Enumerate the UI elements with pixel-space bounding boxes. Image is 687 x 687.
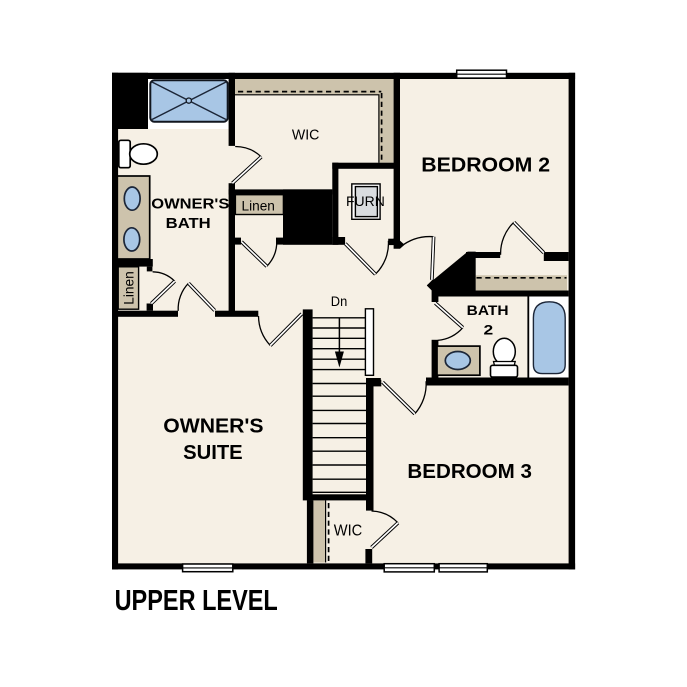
svg-text:WIC: WIC <box>334 522 363 539</box>
svg-text:SUITE: SUITE <box>183 442 243 464</box>
svg-text:UPPER LEVEL: UPPER LEVEL <box>115 585 278 617</box>
svg-text:OWNER'S: OWNER'S <box>151 196 229 213</box>
svg-text:Linen: Linen <box>242 197 275 213</box>
svg-text:FURN: FURN <box>346 194 385 209</box>
svg-text:WIC: WIC <box>292 128 320 144</box>
svg-text:2: 2 <box>484 322 494 338</box>
svg-text:BEDROOM 2: BEDROOM 2 <box>421 154 550 176</box>
svg-text:BATH: BATH <box>467 302 509 318</box>
svg-text:Dn: Dn <box>331 293 348 309</box>
svg-text:Linen: Linen <box>121 271 137 304</box>
svg-text:BEDROOM 3: BEDROOM 3 <box>407 461 532 483</box>
svg-text:BATH: BATH <box>166 215 211 232</box>
svg-text:OWNER'S: OWNER'S <box>163 415 263 437</box>
